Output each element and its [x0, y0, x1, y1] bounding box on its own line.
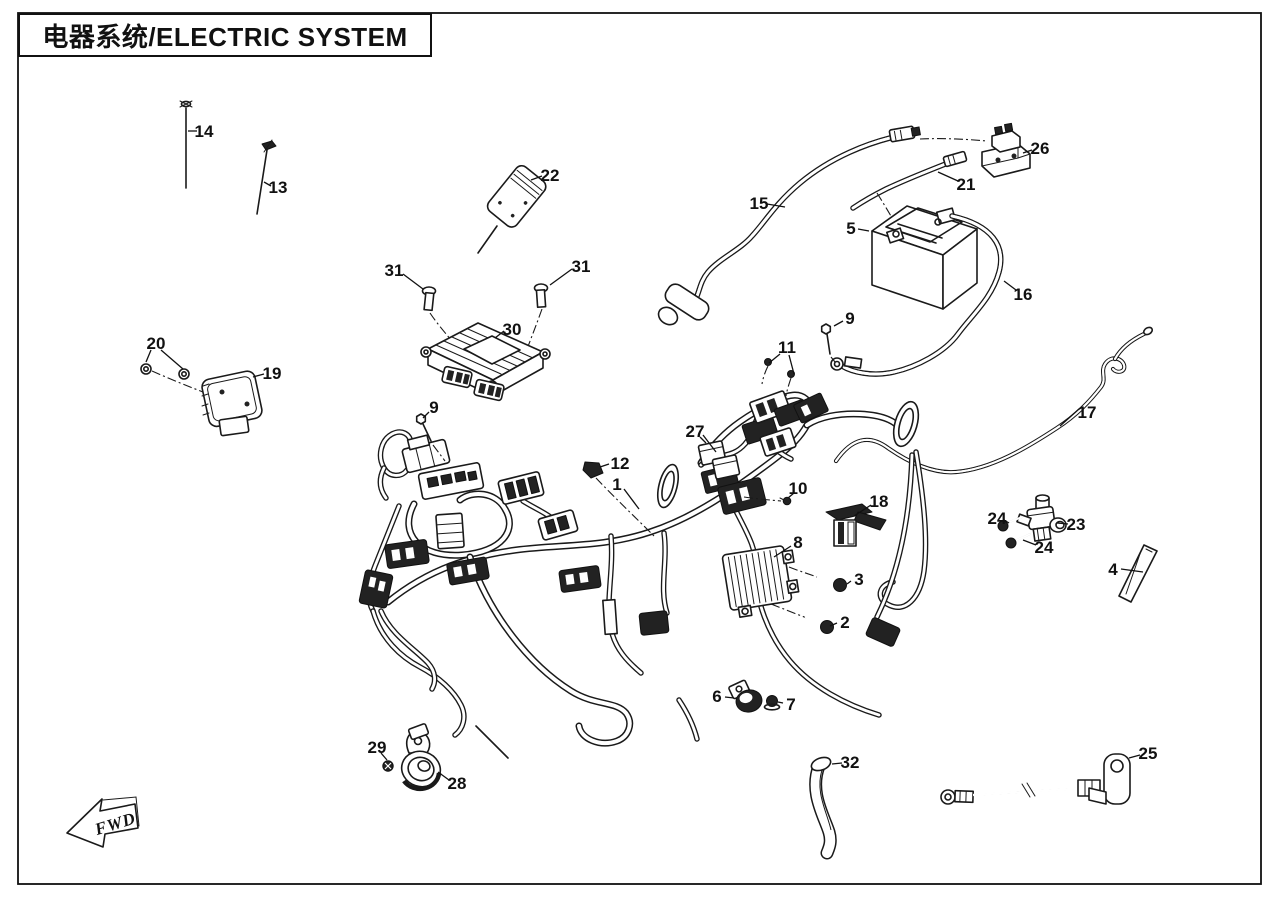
part-26-starter-relay: [982, 123, 1030, 177]
leader-line-31: [403, 274, 423, 289]
callout-label-1: 1: [612, 475, 621, 494]
callout-label-28: 28: [448, 774, 467, 793]
part-31-screw-right: [527, 284, 548, 349]
diagram-canvas: FWD 123456789910111213141516171819202122…: [0, 0, 1279, 897]
part-1-wire-harness: [359, 359, 926, 759]
part-30-ecu: [421, 323, 550, 401]
part-25-ground-strap: [941, 754, 1130, 804]
callout-label-31: 31: [572, 257, 591, 276]
part-4-strip: [1119, 545, 1157, 602]
callout-label-18: 18: [870, 492, 889, 511]
callout-label-16: 16: [1014, 285, 1033, 304]
leader-line-12: [600, 464, 609, 467]
callout-label-4: 4: [1108, 560, 1118, 579]
title-box: 电器系统/ELECTRIC SYSTEM: [18, 13, 432, 57]
part-17-cable: [836, 326, 1153, 472]
part-32-tube: [810, 755, 833, 853]
leader-line-5: [858, 229, 869, 231]
callout-label-25: 25: [1139, 744, 1158, 763]
callout-label-31: 31: [385, 261, 404, 280]
part-6-sensor: [728, 680, 764, 715]
page-border: [18, 13, 1261, 884]
part-11-screws: [762, 359, 795, 397]
parts-catalog-page: { "page": { "title": "电器系统/ELECTRIC SYST…: [0, 0, 1279, 897]
callout-label-17: 17: [1078, 403, 1097, 422]
part-5-battery: [872, 206, 977, 309]
callout-label-3: 3: [854, 570, 863, 589]
part-8-rectifier: [722, 544, 817, 618]
callout-label-27: 27: [686, 422, 705, 441]
callout-label-24: 24: [1035, 538, 1054, 557]
callout-label-5: 5: [846, 219, 855, 238]
callout-label-20: 20: [147, 334, 166, 353]
callout-label-22: 22: [541, 166, 560, 185]
callout-label-14: 14: [195, 122, 214, 141]
part-20-nuts: [141, 364, 208, 394]
leader-line-31: [550, 269, 572, 285]
callout-label-19: 19: [263, 364, 282, 383]
callout-label-13: 13: [269, 178, 288, 197]
callout-label-2: 2: [840, 613, 849, 632]
callout-label-9: 9: [845, 309, 854, 328]
callout-label-12: 12: [611, 454, 630, 473]
callout-label-32: 32: [841, 753, 860, 772]
callout-label-9: 9: [429, 398, 438, 417]
callout-label-7: 7: [786, 695, 795, 714]
part-23-sensor: [1017, 495, 1066, 541]
part-29-bolt: [383, 761, 393, 771]
part-12-clip: [583, 462, 603, 478]
leader-line-17: [1060, 409, 1079, 426]
leader-line-9: [834, 321, 843, 326]
leader-line-1: [624, 489, 639, 509]
callout-label-30: 30: [503, 320, 522, 339]
page-title: 电器系统/ELECTRIC SYSTEM: [42, 17, 407, 54]
part-19-module: [201, 370, 264, 436]
part-3-bolt: [816, 575, 847, 592]
callout-label-6: 6: [712, 687, 721, 706]
callout-label-11: 11: [778, 338, 796, 357]
callout-label-24: 24: [988, 509, 1007, 528]
part-7-nut: [765, 696, 780, 710]
leader-line-7: [778, 702, 783, 703]
leader-line-21: [938, 172, 958, 181]
part-28-horn: [397, 723, 445, 791]
leader-line-3: [847, 581, 851, 584]
callout-label-10: 10: [789, 479, 808, 498]
callout-label-23: 23: [1067, 515, 1086, 534]
fwd-arrow: FWD: [67, 797, 139, 847]
part-9-bolt-battery: [822, 324, 835, 362]
callout-label-8: 8: [793, 533, 802, 552]
callout-label-15: 15: [750, 194, 769, 213]
part-13-cable-tie: [257, 140, 276, 214]
callout-label-26: 26: [1031, 139, 1050, 158]
callout-label-29: 29: [368, 738, 387, 757]
callout-label-21: 21: [957, 175, 976, 194]
part-14-long-pin: [180, 101, 192, 188]
part-22-sensor: [478, 163, 549, 253]
part-2-bolt: [806, 617, 834, 634]
